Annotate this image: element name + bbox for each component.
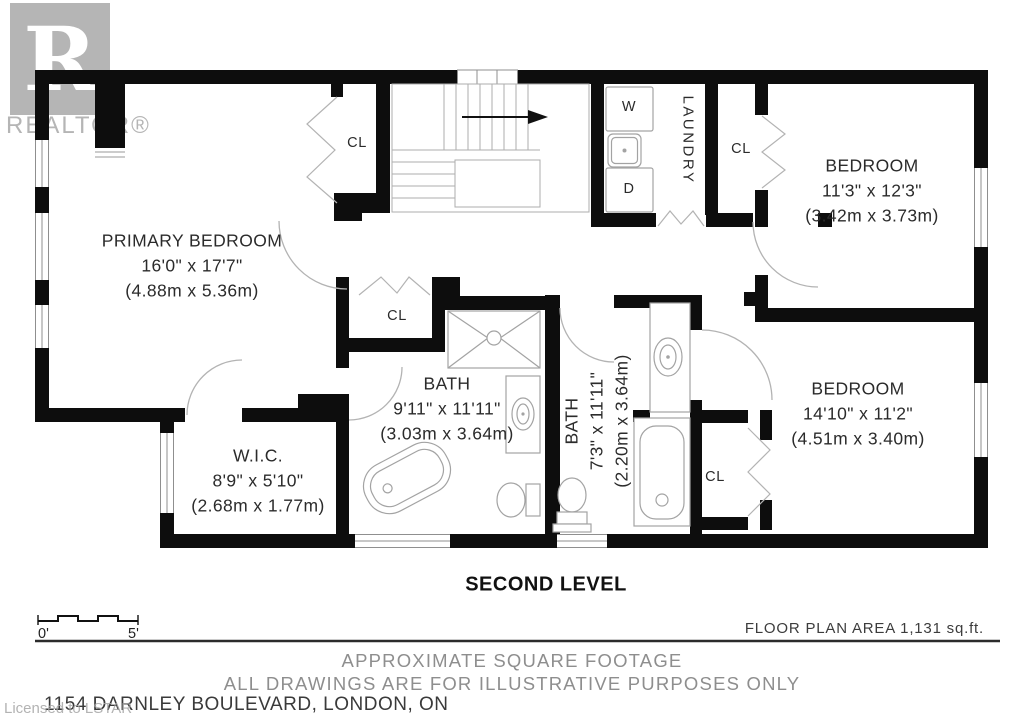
bath2-vanity-sink — [650, 303, 690, 412]
room-label-bath-2: BATH 7'3" x 11'11" (2.20m x 3.64m) — [560, 354, 635, 487]
stair-direction-arrow — [462, 110, 548, 124]
room-dims-metric: (3.03m x 3.64m) — [380, 422, 513, 447]
window-bottom-bath — [355, 534, 450, 548]
wall-projection-lines — [95, 152, 125, 157]
room-label-bedroom-1: BEDROOM 11'3" x 12'3" (3.42m x 3.73m) — [805, 154, 938, 229]
disclaimer-line-2: ALL DRAWINGS ARE FOR ILLUSTRATIVE PURPOS… — [224, 673, 801, 695]
room-dims-imperial: 14'10" x 11'2" — [791, 402, 924, 427]
shower — [448, 311, 540, 368]
window-right-bedroom1 — [974, 168, 988, 247]
floor-plan-page: R REALTOR® — [0, 0, 1024, 722]
closet-label-bedroom1: CL — [731, 141, 751, 157]
room-label-primary-bedroom: PRIMARY BEDROOM 16'0" x 17'7" (4.88m x 5… — [102, 229, 282, 304]
floor-plan-drawing — [0, 0, 1024, 722]
room-dims-metric: (2.20m x 3.64m) — [610, 354, 635, 487]
window-bottom-bath2 — [557, 534, 607, 548]
room-dims-imperial: 8'9" x 5'10" — [191, 469, 324, 494]
room-dims-metric: (4.88m x 5.36m) — [102, 279, 282, 304]
room-name: BATH — [380, 372, 513, 397]
hall-closet-bifold — [359, 277, 430, 295]
room-name: BATH — [560, 354, 585, 487]
room-dims-imperial: 7'3" x 11'11" — [585, 354, 610, 487]
toilet-ensuite — [497, 483, 540, 517]
room-label-ensuite-bath: BATH 9'11" x 11'11" (3.03m x 3.64m) — [380, 372, 513, 447]
room-dims-imperial: 16'0" x 17'7" — [102, 254, 282, 279]
laundry-label: LAUNDRY — [680, 96, 697, 185]
room-name: BEDROOM — [791, 377, 924, 402]
wall-projection — [95, 70, 125, 148]
room-label-wic: W.I.C. 8'9" x 5'10" (2.68m x 1.77m) — [191, 444, 324, 519]
washer-label: W — [622, 99, 636, 115]
room-dims-metric: (3.42m x 3.73m) — [805, 204, 938, 229]
disclaimer-line-1: APPROXIMATE SQUARE FOOTAGE — [342, 650, 683, 672]
room-name: PRIMARY BEDROOM — [102, 229, 282, 254]
level-title: SECOND LEVEL — [465, 574, 627, 597]
scale-bar — [38, 615, 138, 625]
room-name: W.I.C. — [191, 444, 324, 469]
builtin-bathtub — [634, 418, 690, 526]
walls — [35, 70, 988, 548]
closet-label-primary: CL — [347, 135, 367, 151]
license-watermark: Licensed to LSTAR — [4, 700, 132, 717]
staircase — [392, 84, 589, 212]
room-dims-metric: (2.68m x 1.77m) — [191, 494, 324, 519]
scale-start-label: 0' — [38, 626, 49, 642]
freestanding-bathtub — [355, 434, 459, 522]
wic-door-arc — [187, 360, 242, 415]
laundry-sink — [608, 134, 641, 167]
window-left-3 — [35, 305, 49, 348]
bedroom1-closet-bifold — [762, 116, 785, 188]
window-right-bedroom2 — [974, 383, 988, 457]
window-left-2 — [35, 213, 49, 280]
dryer-label: D — [623, 181, 634, 197]
window-left-1 — [35, 140, 49, 187]
room-name: BEDROOM — [805, 154, 938, 179]
room-label-bedroom-2: BEDROOM 14'10" x 11'2" (4.51m x 3.40m) — [791, 377, 924, 452]
scale-end-label: 5' — [128, 626, 139, 642]
bedroom2-door-arc — [702, 330, 772, 400]
room-dims-imperial: 9'11" x 11'11" — [380, 397, 513, 422]
closet-label-hall: CL — [387, 308, 407, 324]
closet-label-bedroom2: CL — [705, 469, 725, 485]
floor-plan-area-note: FLOOR PLAN AREA 1,131 sq.ft. — [745, 620, 984, 637]
room-dims-imperial: 11'3" x 12'3" — [805, 179, 938, 204]
stairwell-opening — [457, 69, 518, 85]
primary-closet-bifold — [307, 97, 337, 203]
window-wic — [160, 433, 174, 513]
room-dims-metric: (4.51m x 3.40m) — [791, 427, 924, 452]
laundry-bifold — [658, 211, 704, 226]
